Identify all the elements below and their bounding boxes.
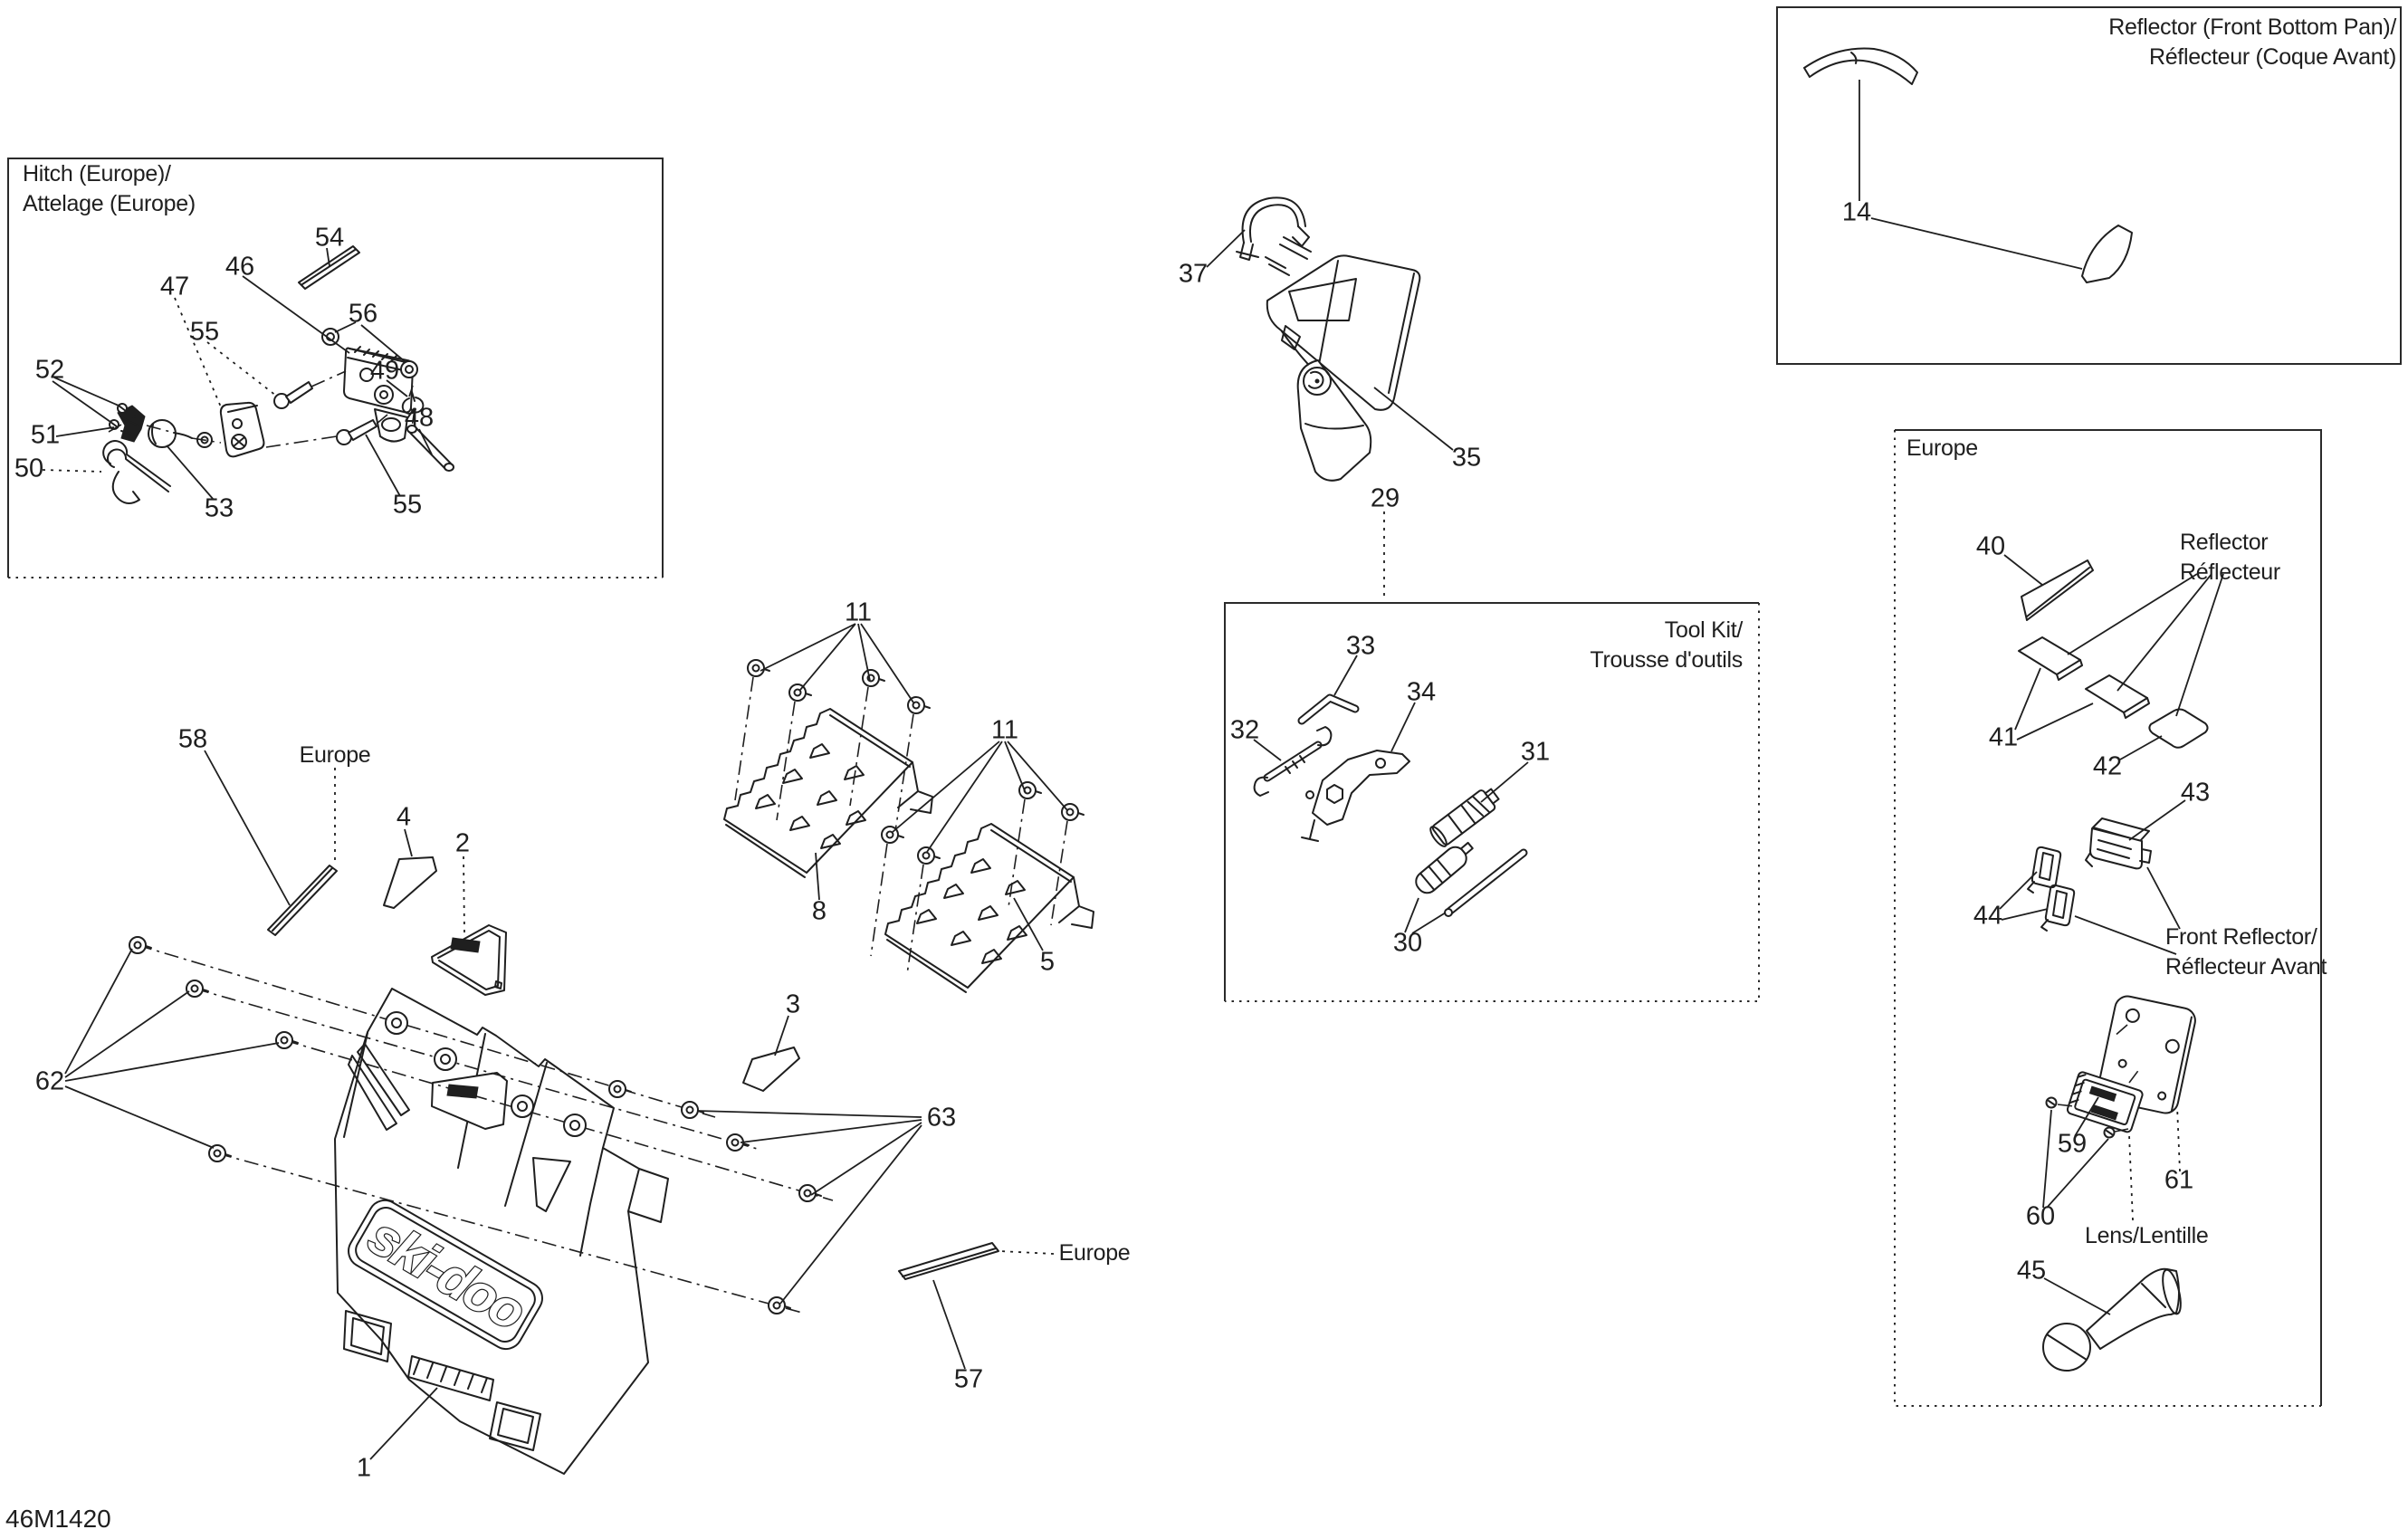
- callout-58: 58: [178, 727, 207, 753]
- callout-32: 32: [1230, 718, 1259, 744]
- hitch-title-line2: Attelage (Europe): [23, 189, 196, 219]
- callout-34: 34: [1407, 680, 1436, 706]
- callout-62: 62: [35, 1069, 64, 1095]
- front-reflector-label-line1: Front Reflector/: [2165, 922, 2327, 952]
- hitch-box-title: Hitch (Europe)/ Attelage (Europe): [23, 159, 196, 218]
- part-37-bail-handle: [1237, 197, 1311, 275]
- callout-37: 37: [1179, 262, 1208, 288]
- callout-63: 63: [927, 1105, 956, 1132]
- callout-52: 52: [35, 358, 64, 384]
- callout-47: 47: [160, 274, 189, 301]
- tool-kit-title-line1: Tool Kit/: [1590, 616, 1743, 645]
- callout-3: 3: [786, 992, 800, 1018]
- reflector-box-title-line1: Reflector (Front Bottom Pan)/: [2108, 13, 2396, 43]
- front-reflector-label-line2: Réflecteur Avant: [2165, 952, 2327, 982]
- callout-8: 8: [812, 899, 827, 925]
- part-45-horn: [2043, 1268, 2184, 1371]
- callout-43: 43: [2181, 780, 2210, 807]
- callout-45: 45: [2017, 1258, 2046, 1285]
- europe-label-left: Europe: [300, 741, 371, 770]
- callout-41: 41: [1989, 725, 2018, 751]
- callout-35: 35: [1452, 445, 1481, 472]
- part-58-europe-strip: [268, 865, 337, 935]
- parts-diagram-page: ski-doo: [0, 0, 2408, 1539]
- callout-48: 48: [405, 406, 434, 432]
- callout-11b: 11: [991, 718, 1018, 744]
- part-30-screwdriver: [1412, 837, 1524, 916]
- callout-33: 33: [1346, 634, 1375, 660]
- callout-49: 49: [370, 358, 399, 385]
- part-14-reflector-strips: [1804, 48, 2132, 282]
- lens-label: Lens/Lentille: [2085, 1221, 2208, 1251]
- part-34-spark-plug-wrench: [1302, 750, 1409, 841]
- part-54-wear-strip: [299, 246, 359, 289]
- callout-14: 14: [1842, 200, 1871, 226]
- reflector-label: Reflector Réflecteur: [2180, 528, 2280, 587]
- callout-44: 44: [1973, 903, 2002, 930]
- part-53-disc-washer: [148, 420, 212, 447]
- callout-50: 50: [14, 456, 43, 483]
- hitch-box-frame: [8, 158, 663, 578]
- page-code: 46M1420: [5, 1505, 111, 1534]
- callout-11a: 11: [845, 600, 872, 626]
- hitch-title-line1: Hitch (Europe)/: [23, 159, 196, 189]
- reflector-box-leaders: [1859, 80, 2082, 269]
- tool-kit-box-title: Tool Kit/ Trousse d'outils: [1590, 616, 1743, 674]
- reflector-label-line2: Réflecteur: [2180, 558, 2280, 588]
- callout-46: 46: [225, 254, 254, 281]
- callout-30: 30: [1393, 931, 1422, 957]
- part-55-bolt-upper: [274, 382, 312, 408]
- part-43-reflector-housing: [2086, 818, 2151, 868]
- part-55-bolt-lower: [337, 420, 377, 444]
- reflector-box-title-line2: Réflecteur (Coque Avant): [2108, 43, 2396, 72]
- callout-53: 53: [205, 496, 234, 522]
- part-50-cotter-clip: [103, 441, 170, 503]
- callout-29: 29: [1371, 486, 1400, 512]
- part-33-allen-key: [1302, 698, 1355, 721]
- tool-kit-title-line2: Trousse d'outils: [1590, 645, 1743, 675]
- part-42-reflector-pad: [2149, 710, 2207, 748]
- part-48-rod: [407, 425, 454, 471]
- front-pan-reflector-box-title: Reflector (Front Bottom Pan)/ Réflecteur…: [2108, 13, 2396, 72]
- part-47-latch-bracket: [221, 403, 264, 456]
- part-2-deflector-panel: [432, 925, 506, 995]
- part-44-brackets: [2028, 847, 2074, 931]
- callout-55a: 55: [190, 320, 219, 346]
- callout-51: 51: [31, 423, 60, 449]
- callout-42: 42: [2093, 754, 2122, 780]
- callout-1: 1: [357, 1456, 371, 1482]
- europe-box-title: Europe: [1906, 434, 1978, 464]
- callout-55b: 55: [393, 492, 422, 519]
- part-3-decal: [743, 1047, 799, 1091]
- callout-54: 54: [315, 225, 344, 252]
- part-4-decal: [384, 857, 436, 908]
- part-41-reflector-pads: [2019, 637, 2149, 718]
- callout-59: 59: [2058, 1132, 2087, 1158]
- reflector-label-line1: Reflector: [2180, 528, 2280, 558]
- callout-31: 31: [1521, 740, 1550, 766]
- callout-56: 56: [349, 301, 377, 328]
- front-reflector-label: Front Reflector/ Réflecteur Avant: [2165, 922, 2327, 981]
- callout-4: 4: [397, 805, 411, 831]
- part-35-tool-holder: [1267, 255, 1420, 409]
- callout-2: 2: [455, 831, 470, 857]
- part-40-reflector-strip: [2021, 560, 2093, 620]
- europe-label-mid: Europe: [1059, 1238, 1131, 1268]
- callout-61: 61: [2164, 1168, 2193, 1194]
- part-8-footrest: [724, 709, 932, 877]
- callout-40: 40: [1976, 534, 2005, 560]
- part-32-wrench: [1255, 727, 1332, 796]
- part-57-europe-strip: [899, 1243, 999, 1279]
- callout-60: 60: [2026, 1204, 2055, 1230]
- callout-5: 5: [1040, 950, 1055, 976]
- callout-57: 57: [954, 1367, 983, 1393]
